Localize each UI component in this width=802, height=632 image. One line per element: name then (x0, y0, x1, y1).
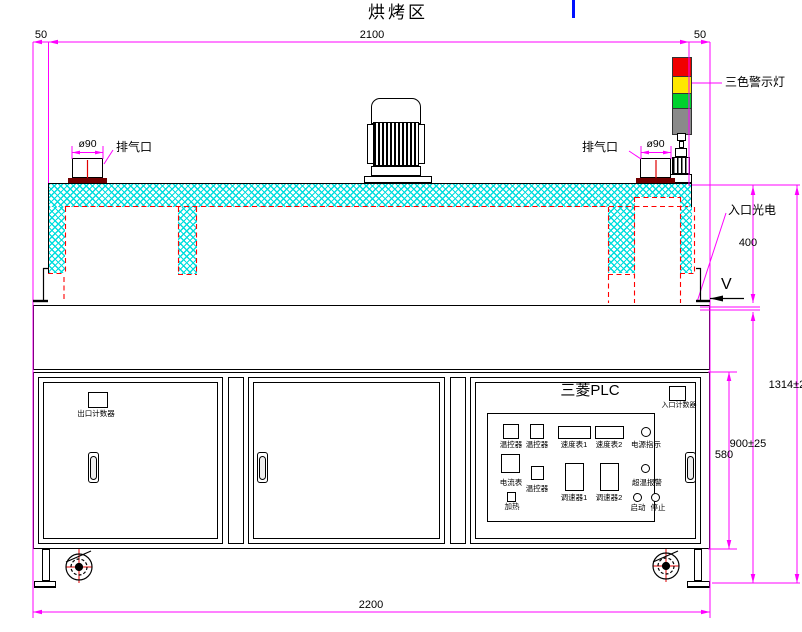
drawing-title: 烘烤区 (336, 4, 460, 23)
dim-top-2100: 2100 (350, 29, 394, 41)
exhaust-left-label: 排气口 (116, 141, 152, 154)
heating-label: 加热 (499, 503, 525, 511)
speed-meter-2-label: 速度表2 (591, 441, 627, 449)
belt-direction-label: V (721, 276, 732, 294)
speed-regulator-2-label: 调速器2 (591, 494, 627, 502)
entry-counter-label: 入口计数器 (658, 402, 700, 410)
power-indicator-label: 电源指示 (627, 441, 665, 449)
stop-button-label: 停止 (645, 504, 671, 512)
dim-dia-right: ø90 (639, 139, 672, 151)
dim-right-50: 50 (688, 29, 712, 41)
overtemp-alarm-label: 超温报警 (627, 479, 667, 487)
inlet-sensor-label: 入口光电 (728, 204, 776, 217)
dim-580: 580 (702, 449, 746, 461)
tower-light-label: 三色警示灯 (725, 76, 785, 89)
dim-bottom-2200: 2200 (349, 599, 393, 611)
dim-left-50: 50 (29, 29, 53, 41)
dim-400: 400 (723, 237, 773, 249)
temp-controller-2-label: 温控器 (522, 441, 552, 449)
oven-engineering-drawing: 烘烤区 50 2100 50 ø90 ø90 排气口 排气口 三色警示灯 入口光… (0, 0, 802, 632)
exit-counter-label: 出口计数器 (68, 410, 124, 418)
dim-1314: 1314±25 (760, 379, 802, 391)
plc-title: 三菱PLC (545, 383, 635, 400)
exhaust-right-label: 排气口 (582, 141, 618, 154)
dim-dia-left: ø90 (71, 139, 104, 151)
speed-regulator-1-label: 调速器1 (556, 494, 592, 502)
temp-controller-3-label: 温控器 (522, 485, 552, 493)
speed-meter-1-label: 速度表1 (556, 441, 592, 449)
